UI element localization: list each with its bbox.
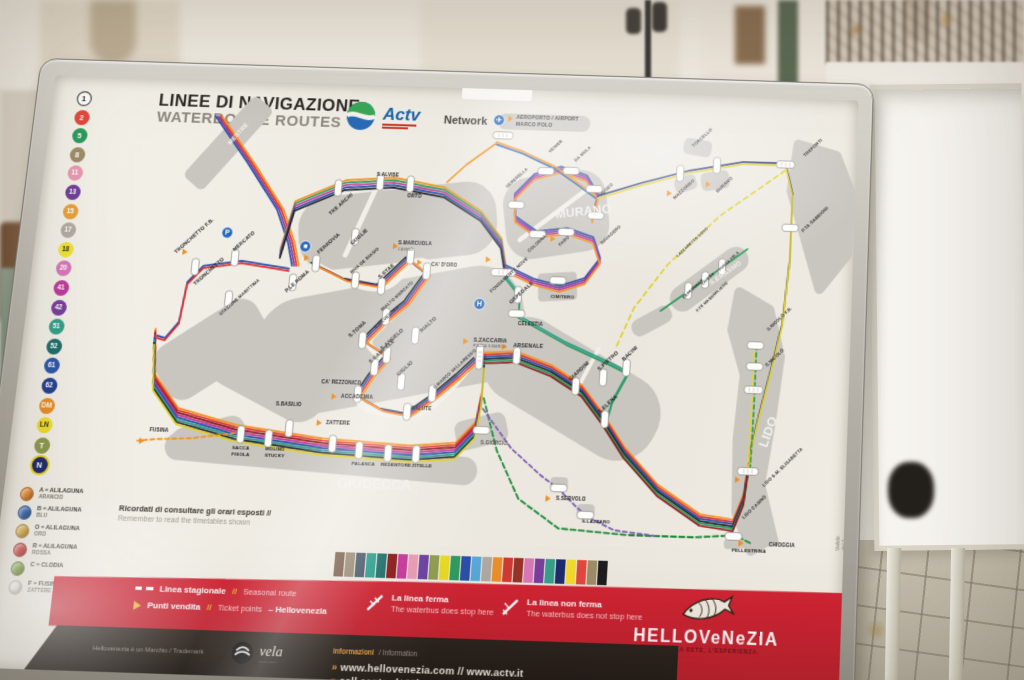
stop-capsule <box>334 180 343 196</box>
legend-stops-text: La linea ferma The waterbus does stop he… <box>390 592 495 620</box>
stop-label: S.GIORGIO <box>480 440 508 446</box>
fish-icon <box>676 588 740 629</box>
colour-swatch <box>544 559 555 584</box>
stop-label: MERCATO <box>232 230 257 253</box>
panel-leg <box>949 548 965 680</box>
stop-label: ACCADEMIA <box>341 394 374 401</box>
stop-capsule <box>285 420 294 437</box>
stop-label: CHIOGGIA <box>769 542 796 548</box>
stone-tiles <box>836 540 1024 680</box>
stop-capsule <box>563 167 580 175</box>
stop-capsule <box>747 341 764 349</box>
stop-label: S.LAZZARO <box>582 518 611 524</box>
trademark-note: Hellovenezia è un Marchio / Trademark <box>92 646 204 656</box>
stop-capsule <box>513 347 521 364</box>
colour-swatch <box>565 560 576 585</box>
stop-capsule <box>355 441 364 458</box>
stop-label: PALANCA <box>351 461 376 467</box>
stop-label: FUSINA <box>149 427 169 433</box>
stop-label: GIUDECCA <box>337 474 413 493</box>
stop-label: TRONCHETTO F.B. <box>174 217 216 255</box>
colour-swatch <box>555 559 566 584</box>
legend-seasonal-it: Linea stagionale <box>159 584 226 596</box>
colour-swatch <box>407 554 418 579</box>
stop-label: ORTO <box>407 193 422 199</box>
alilaguna-logo-icon <box>8 580 23 595</box>
stop-label: PELLESTRINA <box>732 547 767 554</box>
stop-label: REDENTORE <box>381 462 412 468</box>
icon-glyph: ✈ <box>496 117 503 125</box>
stop-label: ZITELLE <box>412 463 432 469</box>
stop-capsule <box>549 277 566 285</box>
line-no-stop-icon <box>499 597 521 619</box>
stop-capsule <box>782 224 799 232</box>
route-map-board: PH■✈MESTRETRONCHETTO F.B.TRONCHETTOMERCA… <box>0 58 874 680</box>
stop-label: DA MULA <box>573 145 592 163</box>
stop-label: S.BASILIO <box>276 401 302 407</box>
colour-swatch <box>449 556 460 581</box>
stop-label: STUCKY <box>264 452 284 458</box>
stop-label: S.ALVISE <box>377 172 400 178</box>
stop-capsule <box>550 484 567 492</box>
arch-doorway <box>90 0 136 64</box>
island <box>629 303 675 340</box>
icon-glyph: H <box>476 301 482 308</box>
vela-wordmark: vela <box>259 643 283 658</box>
line-stops-icon <box>364 592 386 614</box>
colour-swatch <box>375 553 386 578</box>
info-label-en: / Information <box>378 649 417 658</box>
stop-label: MOLINO <box>265 446 285 452</box>
stop-capsule <box>746 363 763 371</box>
icon-glyph: ■ <box>303 244 308 251</box>
stop-label: LAZZARETTO NOVO <box>676 227 709 258</box>
stop-capsule <box>191 258 200 275</box>
stop-label: CELESTIA <box>518 321 544 327</box>
stop-label: S.MARCUOLA <box>398 240 433 246</box>
colour-swatch <box>586 560 597 585</box>
bullet-icon: » <box>331 661 338 674</box>
legend-ticket-brand: – Hellovenezia <box>268 604 327 616</box>
legend-seasonal-en: Seasonal route <box>243 587 297 599</box>
stop-capsule <box>403 403 412 420</box>
ticket-point-icon <box>545 495 551 502</box>
colour-swatch <box>397 554 408 579</box>
triangle-icon <box>133 600 141 609</box>
route-line-airport-west <box>447 142 496 184</box>
dashed-line-icon <box>135 586 153 590</box>
stop-label: CIMITERO <box>550 294 574 300</box>
legend-ticket-it: Punti vendita <box>147 600 201 612</box>
colour-swatch <box>386 554 397 579</box>
dark-object <box>888 462 934 518</box>
colour-swatch <box>576 560 587 585</box>
legend-ticket-en: Ticket points <box>217 603 262 615</box>
colour-swatch <box>460 556 471 581</box>
shuttered-window <box>735 6 765 64</box>
stop-capsule <box>473 426 490 434</box>
stop-capsule <box>725 532 742 540</box>
bullet-icon: » <box>330 675 337 680</box>
stop-capsule <box>713 157 721 173</box>
separator: // <box>206 602 212 612</box>
waterborne-routes-poster: PH■✈MESTRETRONCHETTO F.B.TRONCHETTOMERCA… <box>0 75 858 680</box>
stop-label: CA' D'ORO <box>431 262 458 268</box>
info-label-it: informazioni <box>333 648 375 657</box>
stop-capsule <box>508 201 525 209</box>
stop-label: VENIER <box>547 138 563 153</box>
stop-capsule <box>236 426 245 443</box>
ticket-point-icon <box>667 190 672 196</box>
colour-swatch <box>597 561 608 586</box>
stop-capsule <box>384 444 393 461</box>
colour-swatch <box>428 555 439 580</box>
stop-label: CASINÒ <box>398 246 414 252</box>
legend-stops-here: La linea ferma The waterbus does stop he… <box>364 591 495 619</box>
stop-label: SALUTE <box>411 405 432 411</box>
stop-label: MARCO POLO <box>516 122 553 129</box>
panel-leg <box>885 548 901 680</box>
colour-swatch <box>534 559 545 584</box>
stop-capsule <box>264 430 273 447</box>
colour-swatch <box>481 557 492 582</box>
stop-capsule <box>312 255 321 272</box>
colour-swatch <box>439 555 450 580</box>
ticket-point-icon <box>486 256 492 262</box>
stop-capsule <box>422 263 430 280</box>
stop-capsule <box>358 332 367 349</box>
stop-label: ZATTERE <box>326 420 351 427</box>
ticket-point-icon <box>316 420 322 427</box>
stop-label: SACCA <box>232 445 250 451</box>
stop-capsule <box>538 167 555 175</box>
stop-label: ARSENALE <box>513 343 544 350</box>
stop-capsule <box>508 310 525 318</box>
colour-swatch <box>513 558 524 583</box>
colour-swatch <box>470 556 481 581</box>
vela-logo: vela —— —— <box>229 640 283 666</box>
stop-label: BACINI <box>621 345 640 363</box>
info-block: informazioni / Information » www.hellove… <box>330 638 526 680</box>
colour-swatch <box>491 557 502 582</box>
wrought-iron-railing <box>826 0 1024 64</box>
stop-label: S.SERVOLO <box>556 496 586 502</box>
stop-capsule <box>676 165 684 181</box>
separator: // <box>232 586 238 596</box>
stop-capsule <box>412 445 421 462</box>
stop-capsule <box>406 176 414 192</box>
ticket-point-icon <box>139 437 145 444</box>
vela-wave-icon <box>229 640 255 666</box>
colour-swatch <box>418 555 429 580</box>
colour-swatch <box>502 558 513 583</box>
street-lamp-lantern <box>626 8 641 34</box>
stop-capsule <box>328 435 337 452</box>
street-lamp-lantern <box>652 2 667 32</box>
stop-label: FISOLA <box>231 451 250 457</box>
venice-transit-map: PH■✈MESTRETRONCHETTO F.B.TRONCHETTOMERCA… <box>0 75 858 595</box>
stop-label: P.LE ROMA <box>284 269 311 294</box>
colour-swatch <box>523 558 534 583</box>
